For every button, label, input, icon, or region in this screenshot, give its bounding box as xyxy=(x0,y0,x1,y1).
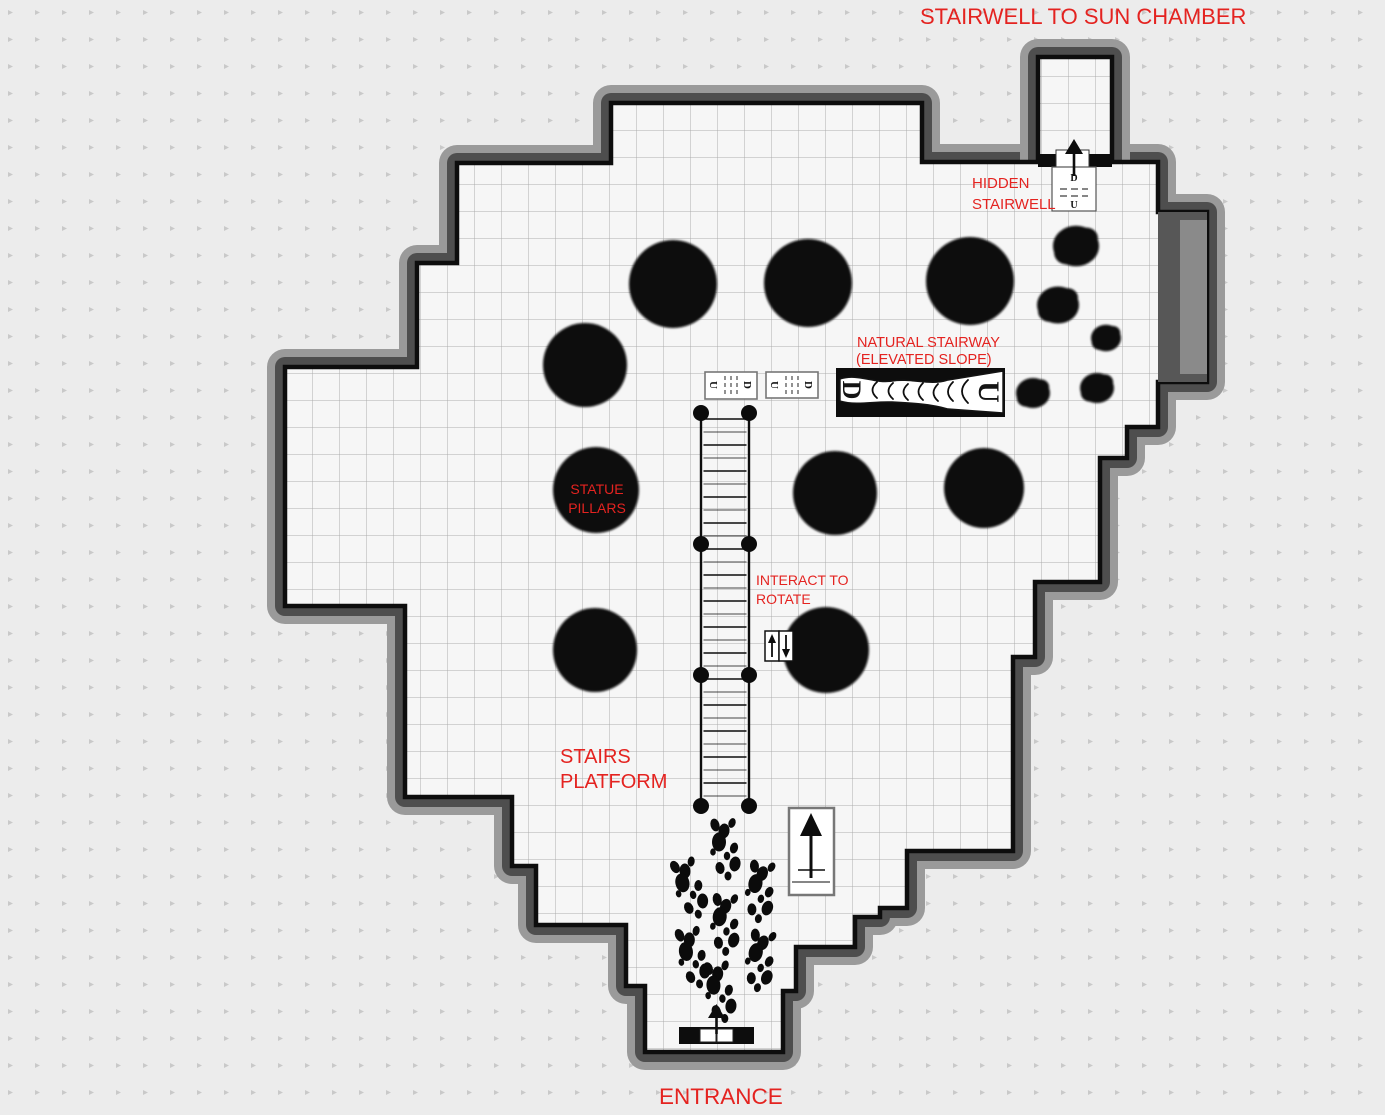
natural-stairway-slope: D U xyxy=(836,368,1005,417)
platform-pivot-dot xyxy=(741,798,757,814)
platform-pivot-dot xyxy=(693,667,709,683)
label-interact-rotate-1: INTERACT TO xyxy=(756,572,849,588)
stairs-up-glyph: U xyxy=(707,381,719,389)
label-entrance: ENTRANCE xyxy=(659,1084,783,1109)
boulder xyxy=(1053,226,1099,266)
label-hidden-stairwell-1: HIDDEN xyxy=(972,175,1030,192)
statue-pillar xyxy=(764,239,852,327)
stairs-down-glyph: D xyxy=(741,381,753,389)
platform-pivot-dot xyxy=(741,405,757,421)
label-stairs-platform-1: STAIRS xyxy=(560,746,631,768)
rock-outcrop xyxy=(1158,212,1207,382)
statue-pillar xyxy=(543,323,627,407)
dungeon-map-canvas: U D U D D xyxy=(0,0,1385,1115)
platform-pivot-dot xyxy=(693,405,709,421)
platform-pivot-dot xyxy=(741,536,757,552)
exit-up-sign xyxy=(789,808,834,895)
statue-pillar xyxy=(629,240,717,328)
slope-down-glyph: D xyxy=(837,381,866,400)
stairs-up-glyph: U xyxy=(768,381,780,389)
platform-pivot-dot xyxy=(741,667,757,683)
statue-pillar xyxy=(926,237,1014,325)
statue-pillar xyxy=(553,608,637,692)
statue-pillar xyxy=(783,607,869,693)
label-interact-rotate-2: ROTATE xyxy=(756,591,811,607)
boulder xyxy=(1016,378,1050,408)
stairwell-up-glyph: U xyxy=(1070,200,1077,211)
boulder xyxy=(1091,325,1121,351)
label-natural-stairway-1: NATURAL STAIRWAY xyxy=(857,335,1000,351)
slope-up-glyph: U xyxy=(972,381,1005,403)
label-sun-chamber: STAIRWELL TO SUN CHAMBER xyxy=(920,4,1246,29)
label-natural-stairway-2: (ELEVATED SLOPE) xyxy=(856,352,992,368)
label-hidden-stairwell-2: STAIRWELL xyxy=(972,196,1056,213)
platform-pivot-dot xyxy=(693,798,709,814)
label-stairs-platform-2: PLATFORM xyxy=(560,771,667,793)
label-statue-pillars-2: PILLARS xyxy=(568,500,626,516)
rotate-toggle-icon[interactable] xyxy=(765,631,793,661)
label-statue-pillars-1: STATUE xyxy=(570,481,623,497)
stair-strip-west: U D xyxy=(705,372,757,399)
statue-pillar xyxy=(793,451,877,535)
boulder xyxy=(1037,287,1079,324)
boulder xyxy=(1080,373,1114,403)
statue-pillar xyxy=(944,448,1024,528)
stairs-down-glyph: D xyxy=(802,381,814,389)
platform-pivot-dot xyxy=(693,536,709,552)
stair-strip-east: U D xyxy=(766,372,818,398)
